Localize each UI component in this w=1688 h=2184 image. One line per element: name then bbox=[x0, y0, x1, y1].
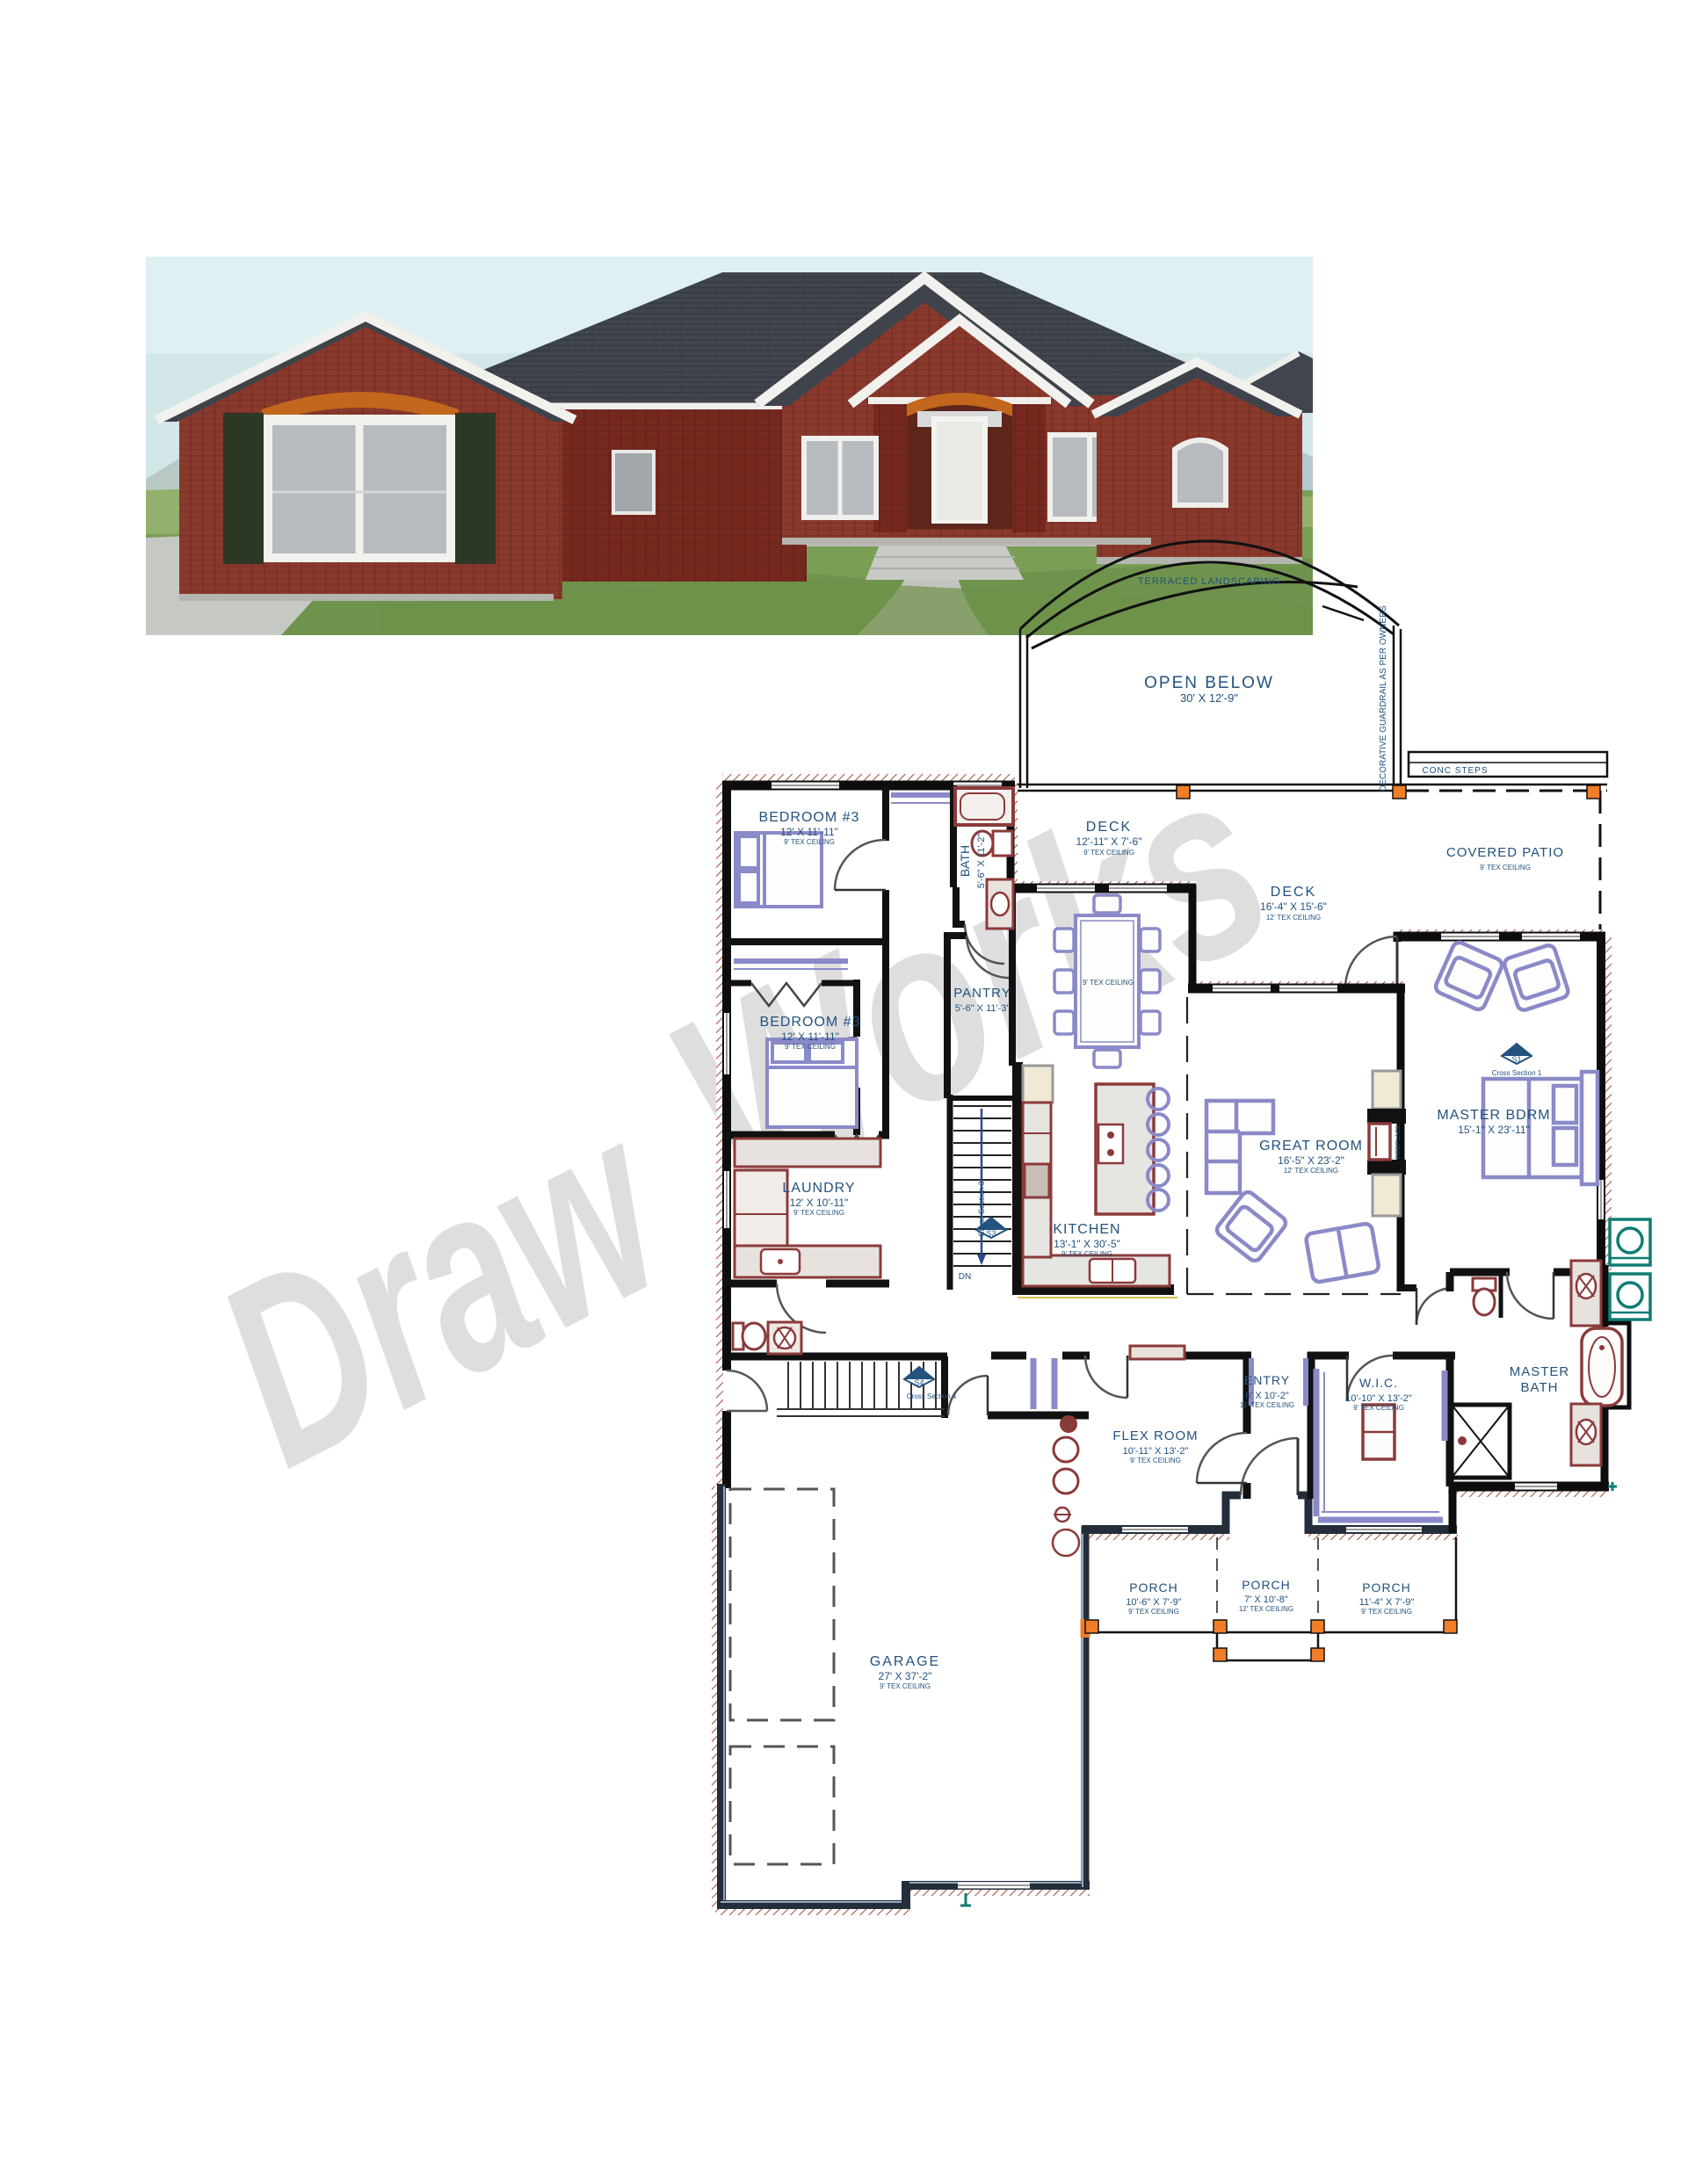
svg-text:16'-4" X 15'-6": 16'-4" X 15'-6" bbox=[1260, 900, 1327, 913]
svg-text:12' TEX CEILING: 12' TEX CEILING bbox=[1239, 1605, 1293, 1613]
svg-text:LAUNDRY: LAUNDRY bbox=[782, 1181, 855, 1196]
svg-text:COVERED PATIO: COVERED PATIO bbox=[1446, 845, 1564, 860]
svg-text:S4: S4 bbox=[914, 1378, 924, 1387]
svg-text:7' X 10'-8": 7' X 10'-8" bbox=[1244, 1595, 1288, 1605]
svg-text:KITCHEN: KITCHEN bbox=[1053, 1222, 1120, 1237]
svg-text:GARAGE: GARAGE bbox=[870, 1654, 940, 1669]
svg-text:PORCH: PORCH bbox=[1129, 1580, 1178, 1595]
svg-text:9' TEX CEILING: 9' TEX CEILING bbox=[1353, 1404, 1404, 1412]
svg-text:BEDROOM #3: BEDROOM #3 bbox=[759, 810, 860, 825]
svg-text:FLEX ROOM: FLEX ROOM bbox=[1112, 1428, 1198, 1443]
svg-text:27' X 37'-2": 27' X 37'-2" bbox=[879, 1670, 932, 1682]
svg-text:Draw: Draw bbox=[177, 1052, 714, 1520]
svg-text:9' TEX CEILING: 9' TEX CEILING bbox=[1083, 979, 1134, 987]
svg-text:Cross Section 3: Cross Section 3 bbox=[977, 1181, 986, 1237]
svg-text:DECK: DECK bbox=[1271, 885, 1316, 900]
svg-text:OPEN BELOW: OPEN BELOW bbox=[1144, 674, 1274, 692]
svg-text:9' TEX CEILING: 9' TEX CEILING bbox=[1128, 1608, 1179, 1616]
svg-text:CONC STEPS: CONC STEPS bbox=[1422, 766, 1488, 776]
svg-text:12' TEX CEILING: 12' TEX CEILING bbox=[1284, 1167, 1338, 1175]
svg-text:9' TEX CEILING: 9' TEX CEILING bbox=[880, 1682, 931, 1690]
svg-text:5'-6" X 11'-2": 5'-6" X 11'-2" bbox=[976, 834, 987, 889]
svg-text:5'-6" X 11'-3": 5'-6" X 11'-3" bbox=[955, 1003, 1011, 1014]
svg-text:PANTRY: PANTRY bbox=[953, 986, 1011, 1001]
svg-text:10'-11" X 13'-2": 10'-11" X 13'-2" bbox=[1123, 1446, 1189, 1457]
svg-text:DN: DN bbox=[959, 1272, 971, 1282]
svg-text:PORCH: PORCH bbox=[1362, 1580, 1411, 1595]
svg-text:BATH: BATH bbox=[958, 845, 972, 877]
svg-text:Cross Section 4: Cross Section 4 bbox=[907, 1392, 957, 1400]
svg-text:12' X 10'-11": 12' X 10'-11" bbox=[790, 1197, 849, 1209]
svg-text:W.I.C.: W.I.C. bbox=[1359, 1376, 1398, 1390]
svg-text:DECK: DECK bbox=[1086, 820, 1132, 835]
svg-text:12' TEX CEILING: 12' TEX CEILING bbox=[1240, 1401, 1294, 1409]
svg-text:11'-4" X 7'-9": 11'-4" X 7'-9" bbox=[1359, 1597, 1415, 1608]
svg-text:30' X 12'-9": 30' X 12'-9" bbox=[1180, 691, 1238, 705]
svg-text:9' TEX CEILING: 9' TEX CEILING bbox=[1480, 864, 1531, 871]
svg-text:12'-11" X 7'-6": 12'-11" X 7'-6" bbox=[1076, 835, 1142, 848]
svg-text:BEDROOM #3: BEDROOM #3 bbox=[760, 1015, 861, 1030]
svg-text:10'-10" X 13'-2": 10'-10" X 13'-2" bbox=[1345, 1393, 1412, 1404]
svg-text:S3: S3 bbox=[986, 1229, 996, 1238]
svg-text:MASTER: MASTER bbox=[1510, 1364, 1570, 1379]
svg-text:ENTRY: ENTRY bbox=[1244, 1373, 1290, 1387]
svg-text:9' TEX CEILING: 9' TEX CEILING bbox=[1130, 1457, 1181, 1464]
svg-text:9' TEX CEILING: 9' TEX CEILING bbox=[1061, 1250, 1112, 1258]
svg-text:13'-1" X 30'-5": 13'-1" X 30'-5" bbox=[1054, 1238, 1120, 1250]
svg-text:12' X 11'-11": 12' X 11'-11" bbox=[781, 1031, 839, 1043]
svg-text:9' TEX CEILING: 9' TEX CEILING bbox=[793, 1209, 844, 1217]
svg-text:DECORATIVE GUARDRAIL AS PER OW: DECORATIVE GUARDRAIL AS PER OWNERS bbox=[1379, 605, 1388, 792]
svg-text:TERRACED LANDSCAPING: TERRACED LANDSCAPING bbox=[1138, 576, 1280, 587]
svg-text:16'-5" X 23'-2": 16'-5" X 23'-2" bbox=[1278, 1154, 1344, 1167]
svg-text:MASTER BDRM: MASTER BDRM bbox=[1437, 1108, 1550, 1123]
svg-text:PORCH: PORCH bbox=[1242, 1578, 1291, 1592]
svg-text:Cross Section 1: Cross Section 1 bbox=[1492, 1069, 1542, 1077]
svg-text:S1: S1 bbox=[1511, 1055, 1521, 1064]
svg-text:15'-1" X 23'-11": 15'-1" X 23'-11" bbox=[1458, 1124, 1530, 1136]
svg-text:9' TEX CEILING: 9' TEX CEILING bbox=[784, 838, 835, 846]
svg-text:9' TEX CEILING: 9' TEX CEILING bbox=[1083, 849, 1134, 857]
svg-text:BATH: BATH bbox=[1521, 1380, 1559, 1395]
svg-text:9' TEX CEILING: 9' TEX CEILING bbox=[1361, 1608, 1412, 1616]
svg-text:9' TEX CEILING: 9' TEX CEILING bbox=[785, 1043, 836, 1051]
svg-text:12' TEX CEILING: 12' TEX CEILING bbox=[1266, 914, 1321, 922]
svg-text:6' X 10'-2": 6' X 10'-2" bbox=[1245, 1391, 1289, 1401]
svg-text:GREAT ROOM: GREAT ROOM bbox=[1259, 1139, 1363, 1153]
svg-text:12' X 11'-11": 12' X 11'-11" bbox=[780, 826, 838, 838]
svg-text:10'-6" X 7'-9": 10'-6" X 7'-9" bbox=[1126, 1597, 1181, 1608]
svg-text:FIREPLACE: FIREPLACE bbox=[1395, 1125, 1402, 1159]
